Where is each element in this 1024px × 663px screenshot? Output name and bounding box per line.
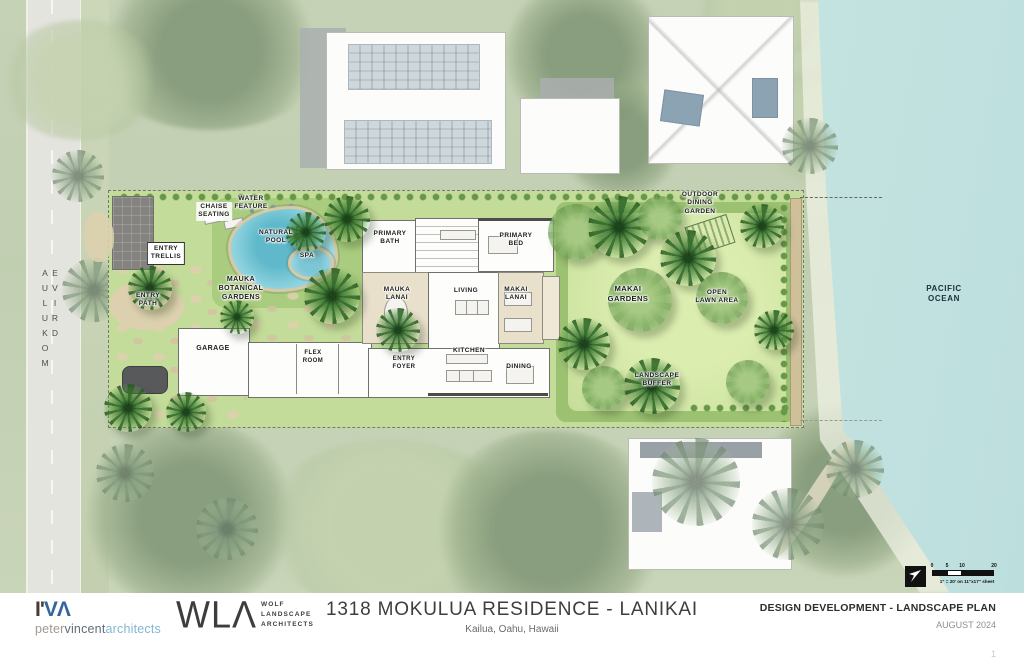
scale-tick: 5	[946, 563, 949, 569]
north-arrow-icon	[905, 566, 926, 587]
counter-outline	[440, 230, 476, 240]
sheet-number: 1	[991, 649, 996, 659]
dimension-line	[800, 197, 882, 198]
label-mauka-lanai: MAUKA LANAI	[384, 286, 410, 303]
makai-lanai-deck	[498, 272, 544, 344]
kitchen-counter	[446, 370, 492, 382]
label-primary-bath: PRIMARY BATH	[374, 230, 407, 247]
scale-segment	[932, 570, 947, 576]
label-outdoor-dining-garden: OUTDOOR DINING GARDEN	[682, 191, 718, 216]
sheet-info-group: DESIGN DEVELOPMENT - LANDSCAPE PLAN AUGU…	[760, 603, 996, 630]
label-entry-foyer: ENTRY FOYER	[393, 356, 416, 372]
palm-tree	[754, 310, 794, 350]
label-primary-bed: PRIMARY BED	[500, 232, 533, 249]
seawall	[790, 198, 802, 426]
scale-bar-group: 0 5 10 20 1" = 20' on 11"x17" sheet	[903, 563, 1003, 591]
wla-logo-mark: WLΛ	[176, 596, 257, 634]
palm-tree	[220, 300, 254, 334]
label-makai-gardens: MAKAI GARDENS	[608, 284, 649, 304]
canopy-tree	[726, 360, 770, 404]
pva-mark-left: I'	[35, 598, 44, 621]
title-block: I'VΛ petervincentarchitects WLΛ WOLF LAN…	[0, 593, 1024, 663]
label-landscape-buffer: LANDSCAPE BUFFER	[635, 372, 680, 389]
label-open-lawn-area: OPEN LAWN AREA	[695, 289, 738, 306]
label-natural-pool: NATURAL POOL	[259, 229, 293, 246]
scale-tick: 0	[931, 563, 934, 569]
palm-tree	[304, 268, 360, 324]
driveway-apron	[84, 212, 114, 262]
label-mokulua-drive: EVIRD AULUKOM	[40, 268, 60, 448]
hedge-row-buffer	[688, 402, 792, 415]
sofa-outline	[455, 300, 489, 315]
scale-segment	[962, 570, 994, 576]
dimension-line	[800, 420, 882, 421]
pva-logo-name: petervincentarchitects	[35, 623, 161, 636]
scale-segment	[947, 570, 962, 576]
scale-caption: 1" = 20' on 11"x17" sheet	[931, 579, 1003, 584]
label-chaise-seating: CHAISE SEATING	[196, 202, 232, 221]
project-location: Kailua, Oahu, Hawaii	[326, 621, 698, 638]
makai-steps	[542, 276, 560, 340]
pva-mark-right: VΛ	[44, 598, 70, 621]
palm-tree	[324, 196, 370, 242]
wall-line	[338, 344, 339, 394]
lanai-seating	[504, 318, 532, 332]
wall-line	[428, 393, 548, 396]
garage-building	[178, 328, 250, 396]
label-garage: GARAGE	[196, 344, 229, 353]
wla-logo-name: WOLF LANDSCAPE ARCHITECTS	[261, 600, 314, 629]
palm-tree	[558, 318, 610, 370]
wla-line1: WOLF	[261, 600, 314, 610]
label-flex-room: FLEX ROOM	[303, 350, 323, 366]
sheet-date: AUGUST 2024	[760, 621, 996, 630]
primary-bath-block	[362, 220, 417, 274]
label-spa: SPA	[300, 252, 314, 260]
wla-line3: ARCHITECTS	[261, 620, 314, 630]
palm-tree	[104, 384, 152, 432]
label-pacific-ocean: PACIFIC OCEAN	[926, 284, 962, 305]
palm-tree	[166, 392, 206, 432]
wolf-landscape-architects-logo: WLΛ WOLF LANDSCAPE ARCHITECTS	[176, 597, 314, 633]
pva-name-architects: architects	[106, 622, 162, 636]
label-dining: DINING	[506, 363, 531, 371]
scale-tick: 10	[959, 563, 965, 569]
label-makai-lanai: MAKAI LANAI	[504, 286, 528, 303]
sheet-title: DESIGN DEVELOPMENT - LANDSCAPE PLAN	[760, 603, 996, 614]
project-title-group: 1318 MOKULUA RESIDENCE - LANIKAI Kailua,…	[326, 600, 698, 638]
label-mauka-botanical-gardens: MAUKA BOTANICAL GARDENS	[219, 275, 264, 302]
label-kitchen: KITCHEN	[453, 347, 485, 355]
label-water-feature: WATER FEATURE	[234, 195, 267, 212]
pva-name-peter: peter	[35, 622, 65, 636]
pva-name-vincent: vincent	[65, 622, 106, 636]
label-living: LIVING	[454, 287, 478, 295]
peter-vincent-architects-logo: I'VΛ petervincentarchitects	[35, 599, 161, 636]
pva-logo-mark: I'VΛ	[35, 599, 161, 620]
landscape-plan-sheet: CHAISE SEATING WATER FEATURE ENTRY TRELL…	[0, 0, 1024, 663]
wall-line	[296, 344, 297, 394]
wall-line	[478, 218, 552, 221]
canopy-tree	[582, 366, 626, 410]
project-title: 1318 MOKULUA RESIDENCE - LANIKAI	[326, 600, 698, 621]
wla-line2: LANDSCAPE	[261, 610, 314, 620]
palm-tree	[740, 204, 784, 248]
scale-tick: 20	[991, 563, 997, 569]
label-entry-path: ENTRY PATH	[136, 292, 160, 309]
palm-tree	[376, 308, 420, 352]
kitchen-island	[446, 354, 488, 364]
entry-roof	[415, 218, 480, 274]
label-entry-trellis: ENTRY TRELLIS	[147, 242, 185, 265]
